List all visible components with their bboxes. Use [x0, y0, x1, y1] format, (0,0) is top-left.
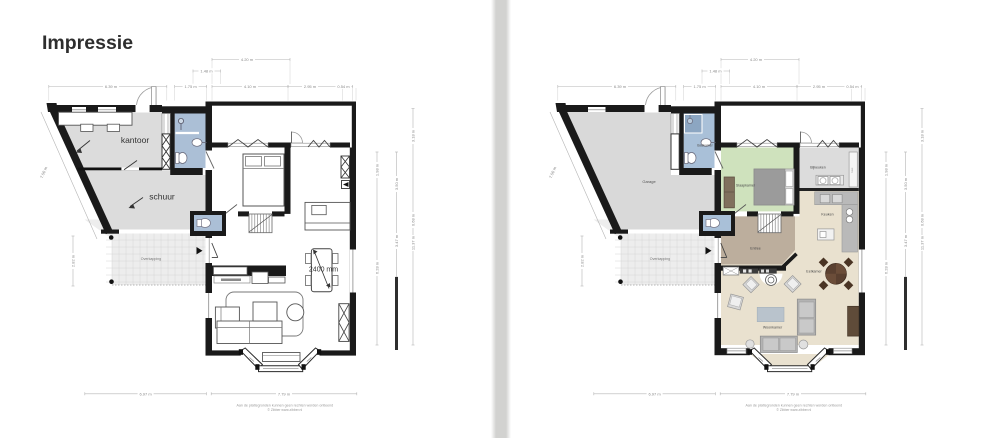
- svg-text:Eetkamer: Eetkamer: [806, 270, 822, 274]
- svg-text:Entree: Entree: [750, 247, 761, 251]
- svg-text:4.10 m: 4.10 m: [244, 84, 257, 89]
- svg-text:3.18 m: 3.18 m: [919, 129, 924, 142]
- svg-text:1.48 m: 1.48 m: [709, 69, 722, 74]
- svg-text:1.98 m: 1.98 m: [883, 163, 888, 176]
- svg-text:4.20 m: 4.20 m: [750, 57, 763, 62]
- svg-text:3.50 m: 3.50 m: [903, 177, 908, 190]
- svg-text:3.47 m: 3.47 m: [903, 234, 908, 247]
- svg-text:1.48 m: 1.48 m: [200, 69, 213, 74]
- svg-text:Badkamer: Badkamer: [697, 144, 713, 148]
- svg-text:Overkapping: Overkapping: [141, 257, 161, 261]
- svg-text:7.79 m: 7.79 m: [278, 391, 291, 396]
- svg-text:Overkapping: Overkapping: [650, 257, 670, 261]
- svg-text:4.10 m: 4.10 m: [753, 84, 766, 89]
- svg-text:Impressie: Impressie: [42, 32, 133, 54]
- svg-text:1.98 m: 1.98 m: [374, 163, 379, 176]
- svg-text:Keuken: Keuken: [821, 213, 833, 217]
- svg-text:Garage: Garage: [642, 179, 656, 184]
- svg-text:4.20 m: 4.20 m: [241, 57, 254, 62]
- svg-text:0.68 m: 0.68 m: [410, 213, 415, 226]
- svg-text:© Zibber www.zibber.nl: © Zibber www.zibber.nl: [267, 408, 302, 412]
- svg-text:3.50 m: 3.50 m: [394, 177, 399, 190]
- svg-text:6.97 m: 6.97 m: [648, 391, 661, 396]
- svg-text:7.79 m: 7.79 m: [787, 391, 800, 396]
- svg-text:2400 mm: 2400 mm: [309, 267, 338, 274]
- svg-text:0.54 m: 0.54 m: [337, 84, 350, 89]
- svg-text:1.75 m: 1.75 m: [184, 84, 197, 89]
- svg-text:kast: kast: [850, 167, 854, 172]
- svg-text:Slaapkamer: Slaapkamer: [736, 184, 756, 188]
- svg-text:kantoor: kantoor: [121, 135, 150, 145]
- svg-text:11.37 m: 11.37 m: [410, 235, 415, 250]
- svg-text:6.39 m: 6.39 m: [614, 84, 627, 89]
- svg-text:2.95 m: 2.95 m: [304, 84, 317, 89]
- svg-text:Woonkamer: Woonkamer: [763, 326, 783, 330]
- svg-text:3.47 m: 3.47 m: [394, 234, 399, 247]
- svg-text:© Zibber www.zibber.nl: © Zibber www.zibber.nl: [776, 408, 811, 412]
- svg-text:Aan de plattegronden kunnen ge: Aan de plattegronden kunnen geen rechten…: [745, 404, 842, 408]
- svg-text:6.97 m: 6.97 m: [139, 391, 152, 396]
- svg-text:6.28 m: 6.28 m: [374, 261, 379, 274]
- svg-text:6.28 m: 6.28 m: [883, 261, 888, 274]
- svg-text:1.75 m: 1.75 m: [693, 84, 706, 89]
- svg-text:2.82 m: 2.82 m: [70, 254, 75, 267]
- svg-text:0.68 m: 0.68 m: [919, 213, 924, 226]
- svg-text:2.82 m: 2.82 m: [579, 254, 584, 267]
- svg-text:schuur: schuur: [149, 192, 175, 202]
- svg-text:0.54 m: 0.54 m: [846, 84, 859, 89]
- svg-text:Aan de plattegronden kunnen ge: Aan de plattegronden kunnen geen rechten…: [236, 404, 333, 408]
- svg-text:3.18 m: 3.18 m: [410, 129, 415, 142]
- svg-text:2.95 m: 2.95 m: [813, 84, 826, 89]
- svg-text:Bijkeuken: Bijkeuken: [810, 166, 826, 170]
- svg-text:6.39 m: 6.39 m: [105, 84, 118, 89]
- svg-text:11.37 m: 11.37 m: [919, 235, 924, 250]
